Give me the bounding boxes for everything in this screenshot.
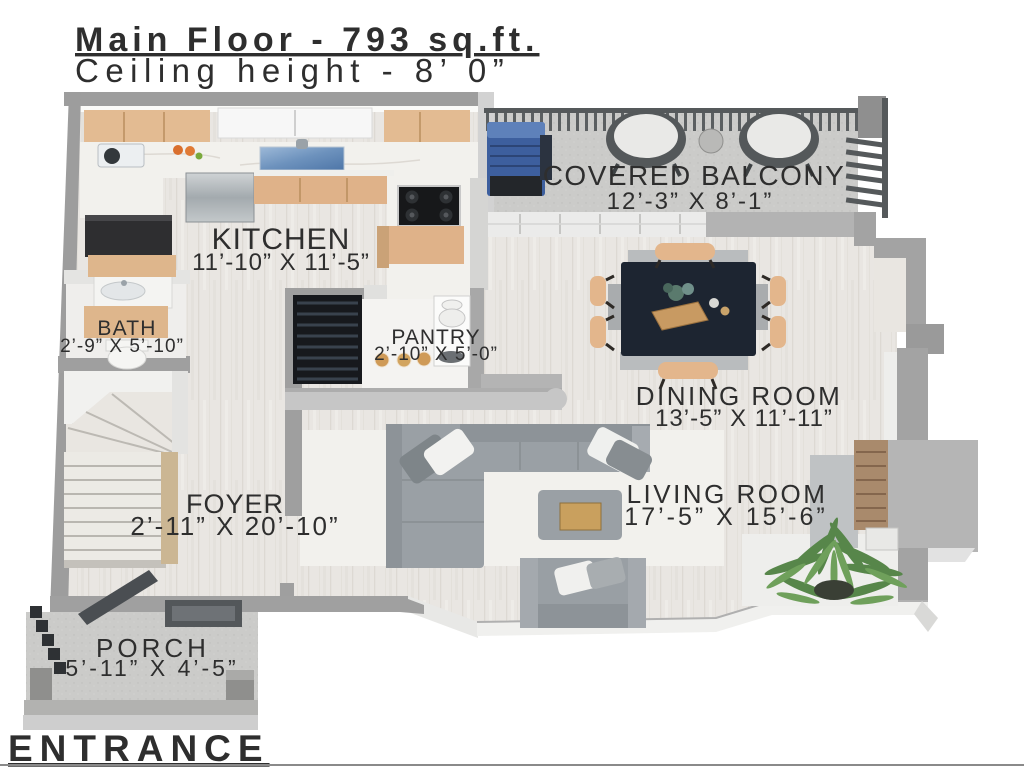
svg-text:Ceiling height - 8’ 0”: Ceiling height - 8’ 0”	[75, 52, 510, 89]
svg-text:2’-11” X 20’-10”: 2’-11” X 20’-10”	[130, 511, 339, 541]
svg-text:2’-10” X 5’-0”: 2’-10” X 5’-0”	[374, 344, 498, 365]
svg-text:17’-5” X 15’-6”: 17’-5” X 15’-6”	[624, 503, 827, 531]
svg-text:12’-3” X 8’-1”: 12’-3” X 8’-1”	[607, 188, 774, 215]
svg-text:ENTRANCE: ENTRANCE	[8, 728, 270, 768]
svg-text:2’-9” X 5’-10”: 2’-9” X 5’-10”	[60, 336, 184, 357]
svg-text:11’-10” X 11’-5”: 11’-10” X 11’-5”	[192, 249, 370, 276]
svg-text:13’-5” X 11’-11”: 13’-5” X 11’-11”	[655, 405, 833, 432]
svg-text:COVERED BALCONY: COVERED BALCONY	[543, 160, 846, 191]
svg-text:5’-11” X 4’-5”: 5’-11” X 4’-5”	[65, 655, 238, 681]
